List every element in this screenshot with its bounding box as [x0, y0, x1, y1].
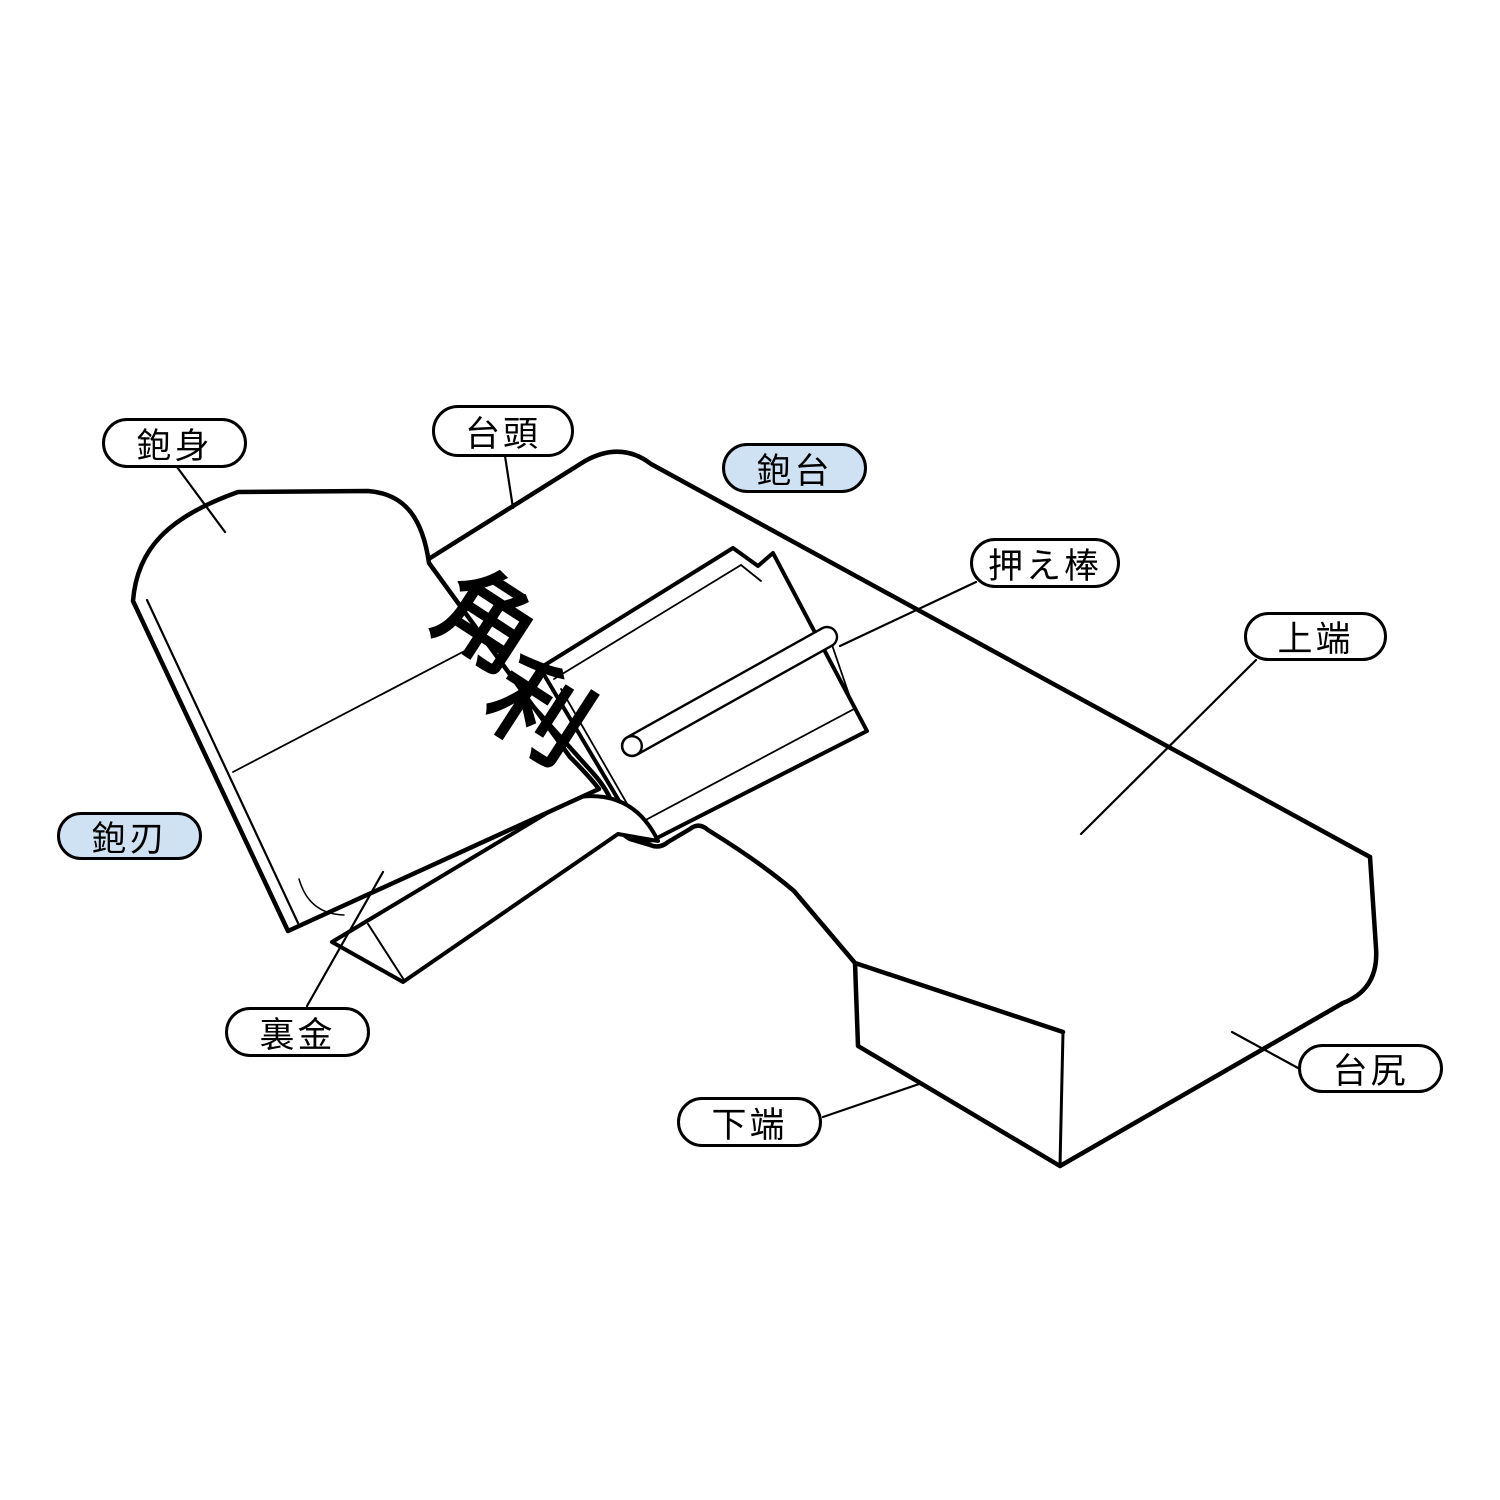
- label-osae-bo: 押え棒: [970, 538, 1120, 588]
- dai-front-edge-right: [855, 963, 1063, 1032]
- rod-body: [622, 627, 837, 756]
- label-ka-tan: 下端: [677, 1097, 822, 1147]
- label-dai-gashira: 台頭: [432, 405, 574, 457]
- leader-osae-bo: [840, 582, 976, 646]
- retaining-rod: [622, 627, 837, 756]
- diagram-line-art: [0, 0, 1500, 1500]
- dai-butt-edge: [1060, 857, 1376, 1166]
- leader-dai-gashira: [505, 456, 513, 508]
- leader-jo-tan: [1081, 660, 1256, 834]
- label-kanna-mi: 鉋身: [102, 418, 247, 468]
- kanna-parts-diagram: 角 利 鉋身 台頭 鉋台 押え棒 上端 鉋刃 裏金 下端 台尻: [0, 0, 1500, 1500]
- label-jo-tan: 上端: [1244, 612, 1387, 661]
- dai-corner-edge: [1060, 1032, 1063, 1166]
- leader-ka-tan: [823, 1083, 922, 1117]
- label-ura-gane: 裏金: [225, 1007, 370, 1057]
- dai-notch-edges: [855, 963, 1060, 1166]
- label-kanna-dai: 鉋台: [722, 443, 867, 493]
- label-dai-jiri: 台尻: [1298, 1044, 1443, 1093]
- rod-end-cap: [622, 736, 642, 756]
- label-kanna-ba: 鉋刃: [57, 812, 202, 860]
